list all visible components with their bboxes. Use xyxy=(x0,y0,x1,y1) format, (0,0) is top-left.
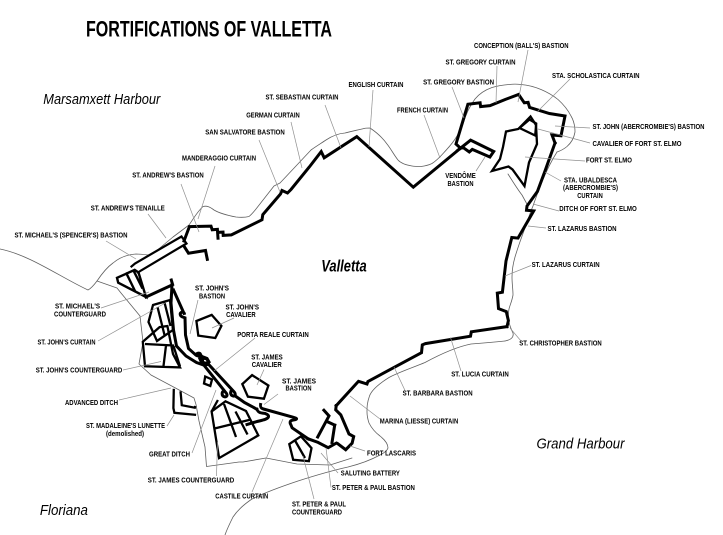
svg-text:COUNTERGUARD: COUNTERGUARD xyxy=(54,309,106,318)
svg-text:ST. CHRISTOPHER BASTION: ST. CHRISTOPHER BASTION xyxy=(519,339,602,348)
svg-text:Marsamxett Harbour: Marsamxett Harbour xyxy=(43,91,161,108)
svg-text:ADVANCED DITCH: ADVANCED DITCH xyxy=(65,398,118,407)
svg-text:SALUTING BATTERY: SALUTING BATTERY xyxy=(341,469,400,478)
svg-text:PORTA REALE CURTAIN: PORTA REALE CURTAIN xyxy=(237,330,309,339)
svg-text:ST. BARBARA BASTION: ST. BARBARA BASTION xyxy=(403,389,473,398)
svg-text:BASTION: BASTION xyxy=(199,292,225,301)
svg-text:ST. JOHN'S CURTAIN: ST. JOHN'S CURTAIN xyxy=(38,337,96,346)
svg-text:CASTILE CURTAIN: CASTILE CURTAIN xyxy=(215,492,268,501)
svg-text:BASTION: BASTION xyxy=(286,384,312,393)
svg-text:GERMAN CURTAIN: GERMAN CURTAIN xyxy=(246,111,300,120)
svg-text:MARINA (LIESSE) CURTAIN: MARINA (LIESSE) CURTAIN xyxy=(380,417,459,426)
svg-text:ST. LAZARUS CURTAIN: ST. LAZARUS CURTAIN xyxy=(532,260,600,269)
svg-text:MANDERAGGIO CURTAIN: MANDERAGGIO CURTAIN xyxy=(182,154,256,163)
svg-text:CONCEPTION (BALL'S) BASTION: CONCEPTION (BALL'S) BASTION xyxy=(474,41,569,50)
svg-text:ST. ANDREW'S TENAILLE: ST. ANDREW'S TENAILLE xyxy=(91,204,165,213)
svg-text:Grand Harbour: Grand Harbour xyxy=(537,436,626,453)
svg-text:ST. MICHAEL'S (SPENCER'S) BAST: ST. MICHAEL'S (SPENCER'S) BASTION xyxy=(15,231,128,240)
svg-text:SAN SALVATORE BASTION: SAN SALVATORE BASTION xyxy=(205,127,285,136)
svg-text:STA. SCHOLASTICA CURTAIN: STA. SCHOLASTICA CURTAIN xyxy=(552,71,640,80)
svg-text:CAVALIER: CAVALIER xyxy=(226,310,256,319)
svg-text:ST. ANDREW'S BASTION: ST. ANDREW'S BASTION xyxy=(132,171,204,180)
svg-text:ST. JOHN (ABERCROMBIE'S) BASTI: ST. JOHN (ABERCROMBIE'S) BASTION xyxy=(593,122,705,131)
svg-text:ST. GREGORY BASTION: ST. GREGORY BASTION xyxy=(423,78,494,87)
svg-text:ST. JOHN'S COUNTERGUARD: ST. JOHN'S COUNTERGUARD xyxy=(36,366,123,375)
svg-text:FORTIFICATIONS OF VALLETTA: FORTIFICATIONS OF VALLETTA xyxy=(86,17,332,42)
svg-text:FRENCH CURTAIN: FRENCH CURTAIN xyxy=(397,106,448,115)
svg-text:ST. GREGORY CURTAIN: ST. GREGORY CURTAIN xyxy=(446,58,516,67)
svg-text:COUNTERGUARD: COUNTERGUARD xyxy=(292,508,342,517)
svg-text:ST. SEBASTIAN CURTAIN: ST. SEBASTIAN CURTAIN xyxy=(266,92,339,101)
svg-text:Floriana: Floriana xyxy=(40,502,88,519)
svg-text:(demolished): (demolished) xyxy=(106,429,144,438)
svg-text:CAVALIER: CAVALIER xyxy=(252,360,282,369)
svg-text:ST. JAMES COUNTERGUARD: ST. JAMES COUNTERGUARD xyxy=(148,476,235,485)
svg-text:CURTAIN: CURTAIN xyxy=(577,191,603,200)
svg-text:Valletta: Valletta xyxy=(321,257,367,276)
svg-text:ENGLISH CURTAIN: ENGLISH CURTAIN xyxy=(349,80,404,89)
svg-text:FORT ST. ELMO: FORT ST. ELMO xyxy=(586,156,632,165)
svg-text:ST. PETER & PAUL BASTION: ST. PETER & PAUL BASTION xyxy=(332,483,415,492)
svg-text:BASTION: BASTION xyxy=(448,179,474,188)
svg-text:ST. LUCIA CURTAIN: ST. LUCIA CURTAIN xyxy=(451,370,509,379)
svg-text:ST. LAZARUS BASTION: ST. LAZARUS BASTION xyxy=(548,224,617,233)
svg-text:GREAT DITCH: GREAT DITCH xyxy=(149,450,190,459)
svg-text:CAVALIER OF FORT ST. ELMO: CAVALIER OF FORT ST. ELMO xyxy=(593,139,682,148)
svg-text:DITCH OF FORT ST. ELMO: DITCH OF FORT ST. ELMO xyxy=(559,204,637,213)
svg-text:FORT LASCARIS: FORT LASCARIS xyxy=(367,449,416,458)
